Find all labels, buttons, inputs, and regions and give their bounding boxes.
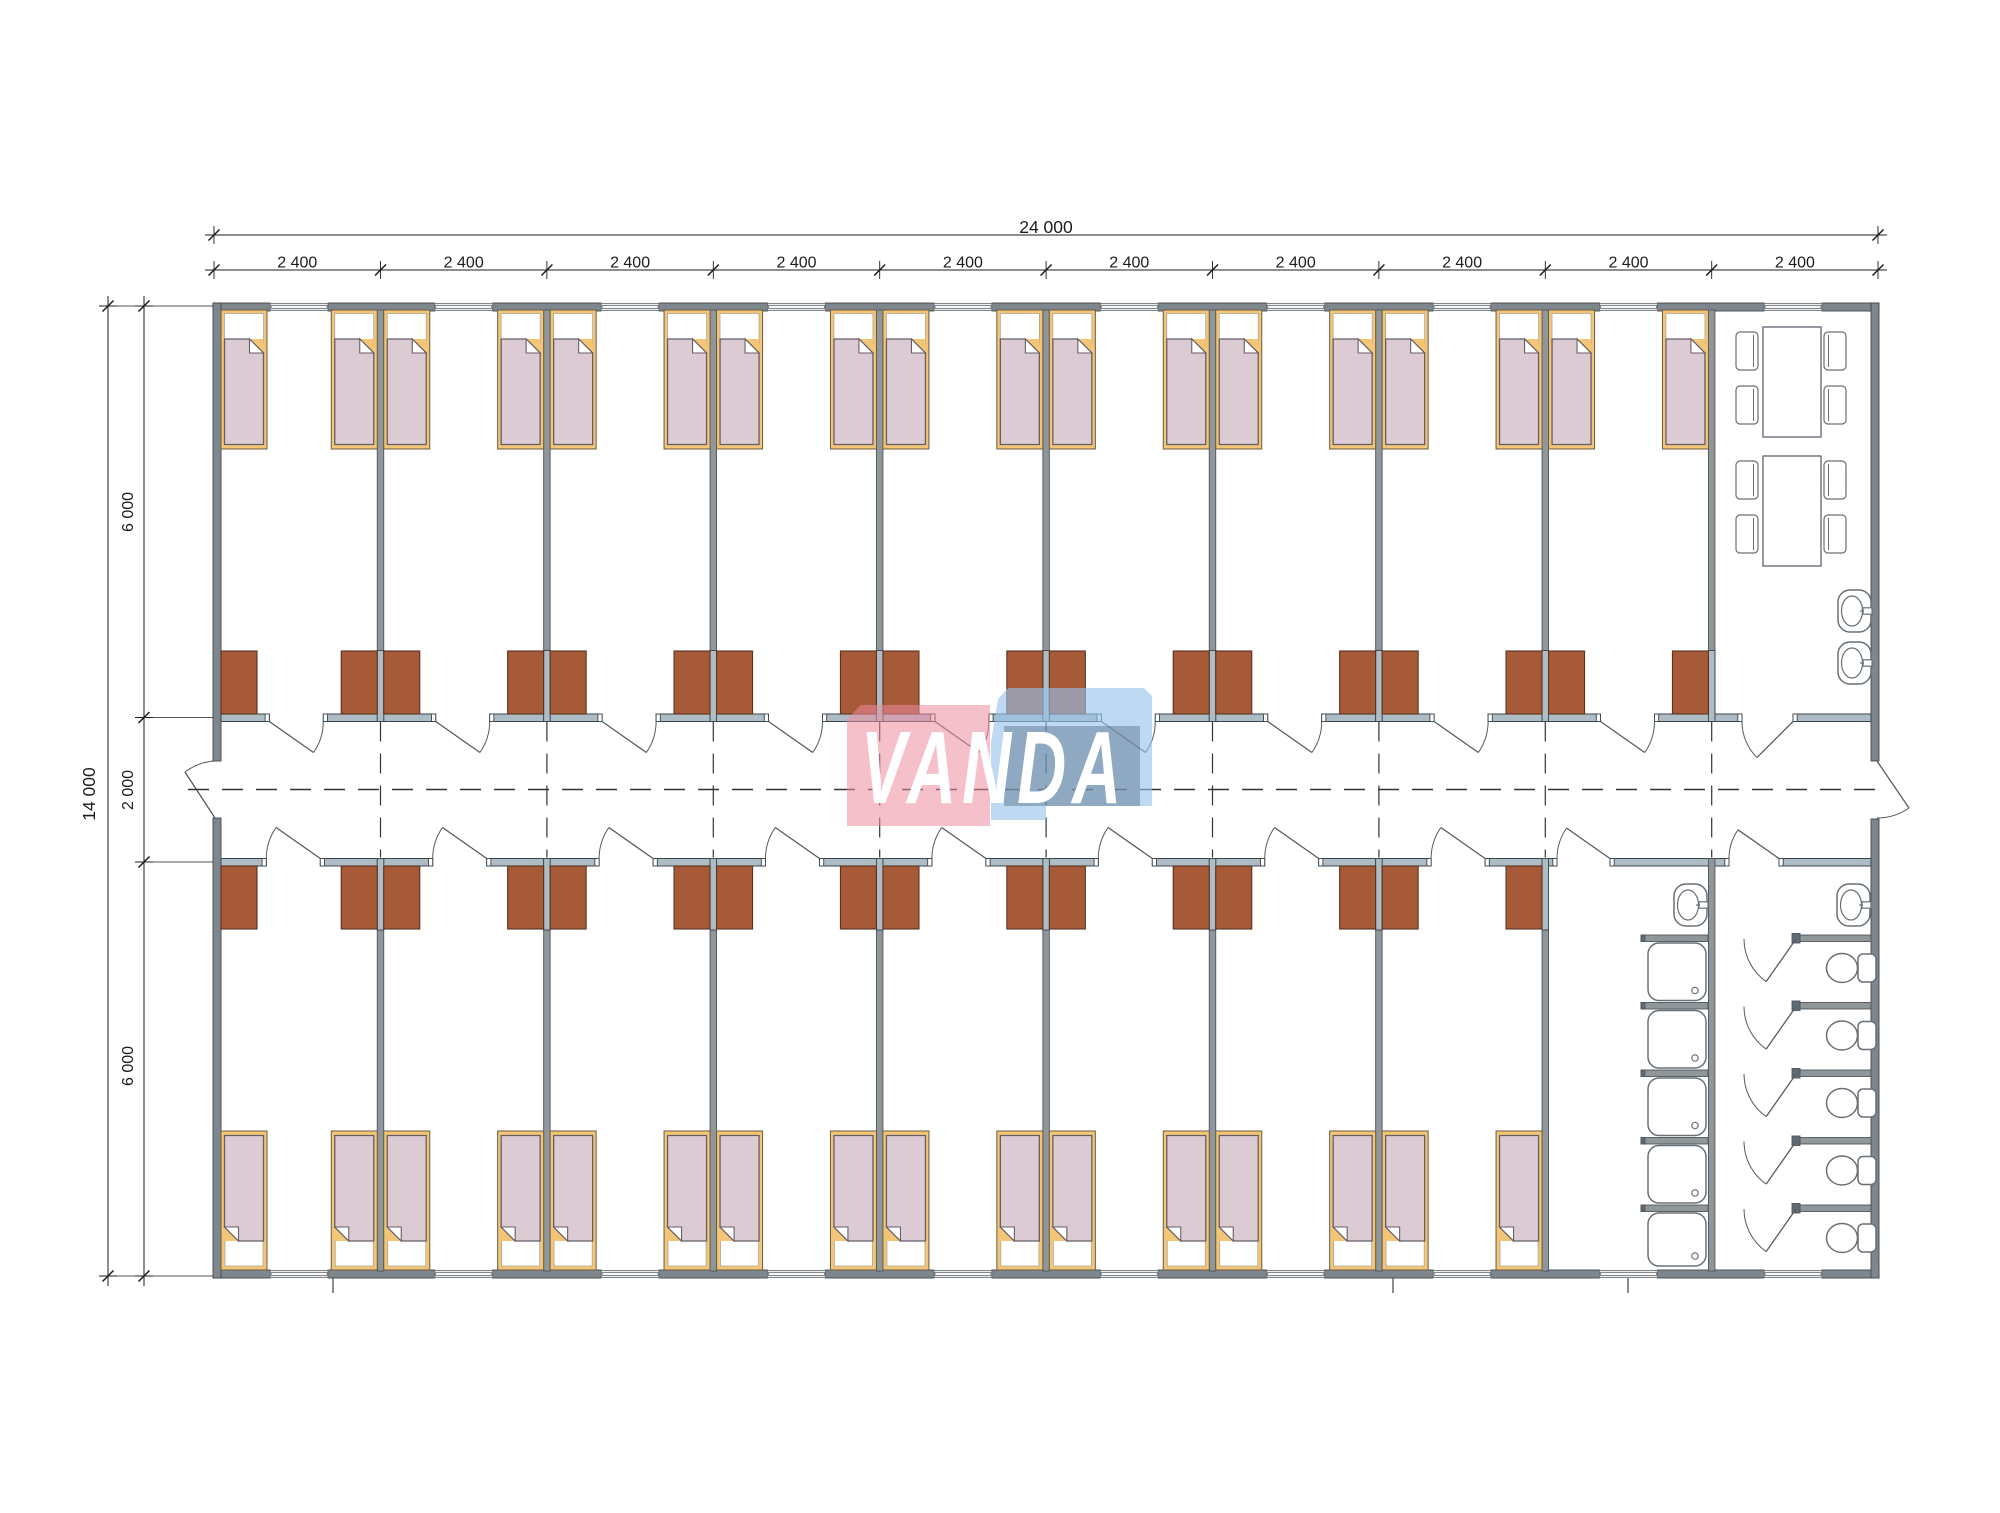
svg-text:2 400: 2 400 bbox=[444, 255, 484, 272]
svg-text:6 000: 6 000 bbox=[120, 1046, 137, 1086]
svg-text:2 400: 2 400 bbox=[1608, 255, 1648, 272]
svg-text:2 000: 2 000 bbox=[120, 770, 137, 810]
svg-text:2 400: 2 400 bbox=[1442, 255, 1482, 272]
svg-text:VANDA: VANDA bbox=[861, 711, 1127, 825]
svg-text:2 400: 2 400 bbox=[776, 255, 816, 272]
svg-text:6 000: 6 000 bbox=[120, 492, 137, 532]
svg-text:2 400: 2 400 bbox=[610, 255, 650, 272]
svg-text:2 400: 2 400 bbox=[1775, 255, 1815, 272]
svg-text:14 000: 14 000 bbox=[79, 767, 99, 821]
svg-text:2 400: 2 400 bbox=[277, 255, 317, 272]
svg-text:2 400: 2 400 bbox=[943, 255, 983, 272]
svg-text:24 000: 24 000 bbox=[1019, 217, 1073, 237]
svg-text:2 400: 2 400 bbox=[1109, 255, 1149, 272]
svg-text:2 400: 2 400 bbox=[1276, 255, 1316, 272]
